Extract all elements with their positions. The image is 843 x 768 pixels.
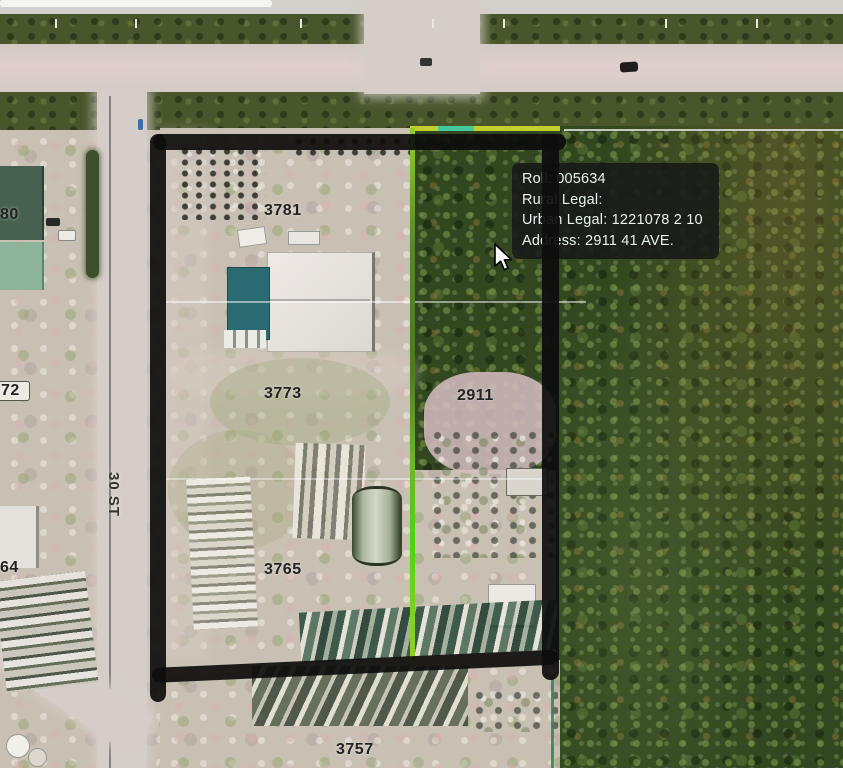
parcel-label-72-partial: 72 <box>1 382 20 400</box>
survey-line-green <box>410 128 415 662</box>
parcel-boundary-west <box>150 134 166 702</box>
white-dock-units <box>224 330 266 348</box>
white-strip <box>0 0 272 7</box>
survey-line-cyan <box>438 126 474 131</box>
quonset-building <box>352 486 402 566</box>
fence-post-6 <box>665 19 667 28</box>
parcel-boundary-east <box>542 134 559 680</box>
road-30-st <box>97 92 147 768</box>
parked-car-white <box>58 230 76 241</box>
junk-below-parcel-east <box>470 688 558 732</box>
fence-post-4 <box>432 19 434 28</box>
mouse-cursor-icon <box>494 243 516 273</box>
building-3780-dark-roof <box>0 166 44 240</box>
fence-post-7 <box>756 19 758 28</box>
parcel-label-64-partial: 64 <box>0 559 19 577</box>
parcel-label-3765: 3765 <box>264 561 302 579</box>
section-line-2 <box>166 478 556 480</box>
white-unit-1 <box>237 226 267 248</box>
trailer-column-west <box>186 476 258 629</box>
lot-line-south-green <box>551 676 554 768</box>
storage-tank-2 <box>28 748 47 767</box>
boundary-line-east-thin <box>564 129 843 131</box>
fence-post-5 <box>503 19 505 28</box>
vehicle-on-41ave <box>620 61 639 72</box>
equipment-cluster-nw <box>178 146 266 220</box>
blue-object <box>138 119 143 130</box>
cross-road-north <box>364 0 480 94</box>
power-line <box>109 96 111 768</box>
parcel-boundary-top <box>153 134 566 150</box>
parcel-label-80-partial: 80 <box>0 206 19 224</box>
building-3780-light-roof <box>0 242 44 290</box>
map-canvas[interactable]: 3781 3773 3765 3757 2911 80 72 64 30 ST … <box>0 0 843 768</box>
parcel-label-3773: 3773 <box>264 385 302 403</box>
white-unit-2 <box>288 231 320 245</box>
parcel-label-3757: 3757 <box>336 741 374 759</box>
section-line-1 <box>166 301 586 303</box>
parked-car-dark <box>46 218 60 226</box>
street-label-30-st: 30 ST <box>105 472 122 517</box>
survey-line-yellow <box>410 126 560 131</box>
trailer-rows-west <box>0 571 98 693</box>
hedge-row <box>86 150 99 278</box>
parcel-label-3781: 3781 <box>264 202 302 220</box>
vehicle-on-41ave-2 <box>420 58 432 66</box>
fence-post-3 <box>300 19 302 28</box>
fence-post-2 <box>135 19 137 28</box>
fence-post-1 <box>55 19 57 28</box>
parcel-label-2911: 2911 <box>457 387 494 405</box>
storage-tank-1 <box>6 734 30 758</box>
